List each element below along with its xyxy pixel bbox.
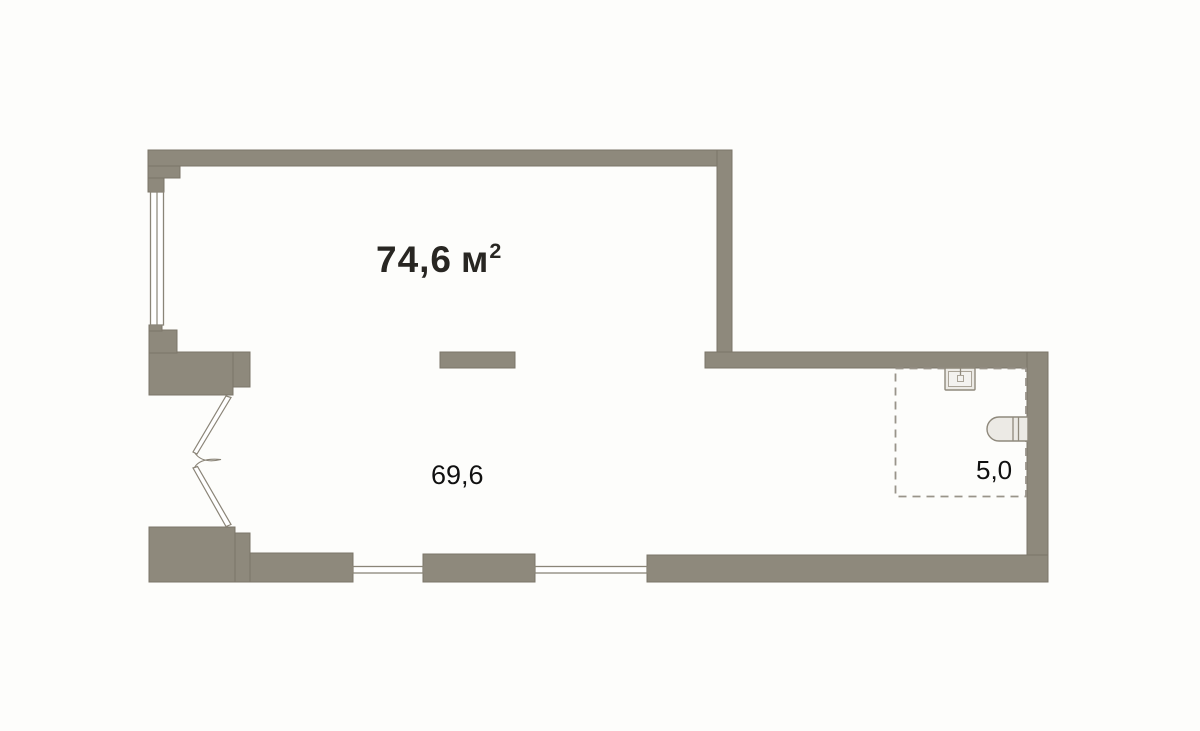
wall-bottom-pier — [423, 554, 535, 582]
wall-mid-horizontal — [705, 352, 1048, 368]
floor-plan: 74,6м2 69,6 5,0 — [0, 0, 1200, 731]
window-bottom-1-icon — [353, 567, 423, 574]
door-leaf-bottom — [193, 467, 231, 527]
floor-plan-drawing — [0, 0, 1200, 731]
walls — [148, 150, 1048, 582]
total-area-unit: м — [461, 239, 489, 280]
wall-mid-left-block — [149, 352, 233, 395]
wall-partition-stub — [440, 352, 515, 368]
wall-left-top-step2 — [148, 178, 164, 192]
main-room-area-label: 69,6 — [431, 460, 484, 491]
wall-left-column — [149, 330, 177, 353]
wall-upper-right-vertical — [717, 150, 732, 352]
total-area-superscript: 2 — [489, 239, 501, 263]
toilet-bowl — [987, 417, 1028, 441]
door-leaf-top — [193, 396, 231, 454]
wall-bottom-left-strip — [250, 553, 353, 582]
toilet-icon — [987, 417, 1028, 441]
sink-drain — [958, 376, 964, 382]
wall-bottom-left-step — [235, 533, 250, 582]
wall-bottom-right — [647, 555, 1048, 582]
wall-bottom-left-block — [149, 527, 235, 582]
wall-top — [148, 150, 732, 166]
wall-mid-left-step — [233, 352, 250, 387]
double-door-icon — [193, 396, 231, 527]
door-swing-arc — [195, 453, 222, 468]
window-bottom-2-icon — [535, 567, 647, 574]
wall-left-top-step1 — [148, 166, 180, 178]
total-area-label: 74,6м2 — [376, 239, 501, 281]
total-area-value: 74,6 — [376, 239, 452, 280]
wall-window-sill-bottom — [149, 325, 162, 331]
sink-icon — [945, 368, 975, 390]
wall-right — [1027, 352, 1048, 582]
bathroom-area-label: 5,0 — [976, 455, 1012, 486]
